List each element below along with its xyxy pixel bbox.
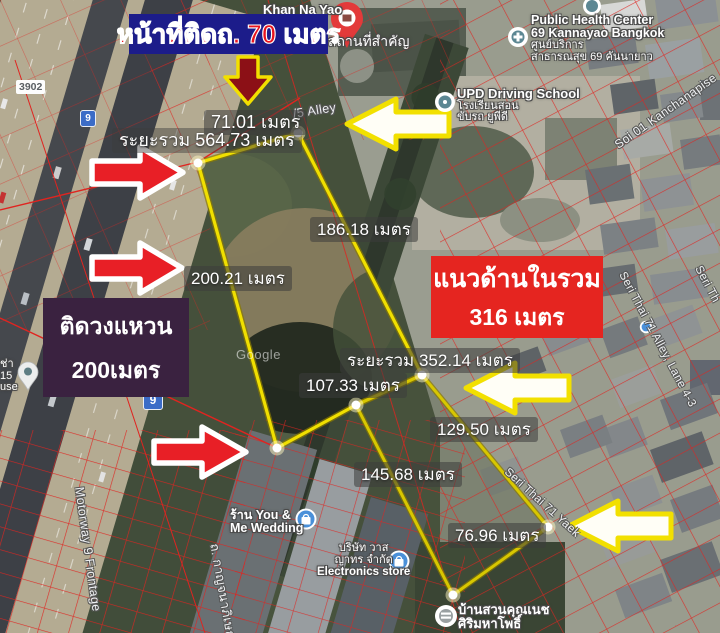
driving-school-label: UPD Driving School โรงเรียนสอน ขับรถ ยูพ… bbox=[457, 87, 580, 124]
rent-label: ช่า 15 use bbox=[0, 359, 18, 394]
annotated-satellite-map: Khan Na Yao สถานที่สำคัญ Public Health C… bbox=[0, 0, 720, 633]
measure-lower-south: 76.96 เมตร bbox=[448, 523, 546, 548]
measure-west-side: 200.21 เมตร bbox=[184, 266, 292, 291]
garden-home-icon bbox=[435, 605, 457, 627]
measure-east-side: 186.18 เมตร bbox=[310, 217, 418, 242]
measure-south-side: 107.33 เมตร bbox=[299, 373, 407, 398]
inner-total-line2: 316 เมตร bbox=[469, 299, 564, 335]
inner-total-box: แนวด้านในรวม 316 เมตร bbox=[431, 256, 603, 338]
wedding-shop-label: ร้าน You & Me Wedding bbox=[230, 509, 303, 535]
health-center-icon bbox=[508, 27, 528, 47]
health-center-label: Public Health Center 69 Kannayao Bangkok… bbox=[531, 14, 664, 63]
route-3902-badge: 3902 bbox=[16, 80, 45, 94]
road-frontage-box: หน้าที่ติดถ. 70 เมตร bbox=[129, 14, 328, 54]
driving-school-icon bbox=[435, 92, 455, 112]
electronics-store-label: บริษัท วาส ญาทร จำกัด Electronics store bbox=[317, 543, 410, 578]
measure-inner-total: ระยะรวม 352.14 เมตร bbox=[340, 348, 520, 373]
google-watermark: Google bbox=[236, 347, 281, 362]
inner-total-line1: แนวด้านในรวม bbox=[433, 259, 601, 299]
ring-road-line2: 200เมตร bbox=[72, 348, 161, 392]
ring-road-line1: ติดวงแหวน bbox=[60, 304, 173, 348]
route-9-shield: 9 bbox=[80, 110, 96, 127]
measure-lower-east: 129.50 เมตร bbox=[430, 417, 538, 442]
garden-home-label: บ้านสวนคุณเนช ศิริมหาโพธิ์ bbox=[458, 603, 549, 630]
measure-top-total: ระยะรวม 564.73 เมตร bbox=[112, 128, 302, 153]
road-frontage-text: หน้าที่ติดถ. 70 เมตร bbox=[117, 14, 341, 55]
measure-lower-west: 145.68 เมตร bbox=[354, 462, 462, 487]
ring-road-box: ติดวงแหวน 200เมตร bbox=[43, 298, 189, 397]
